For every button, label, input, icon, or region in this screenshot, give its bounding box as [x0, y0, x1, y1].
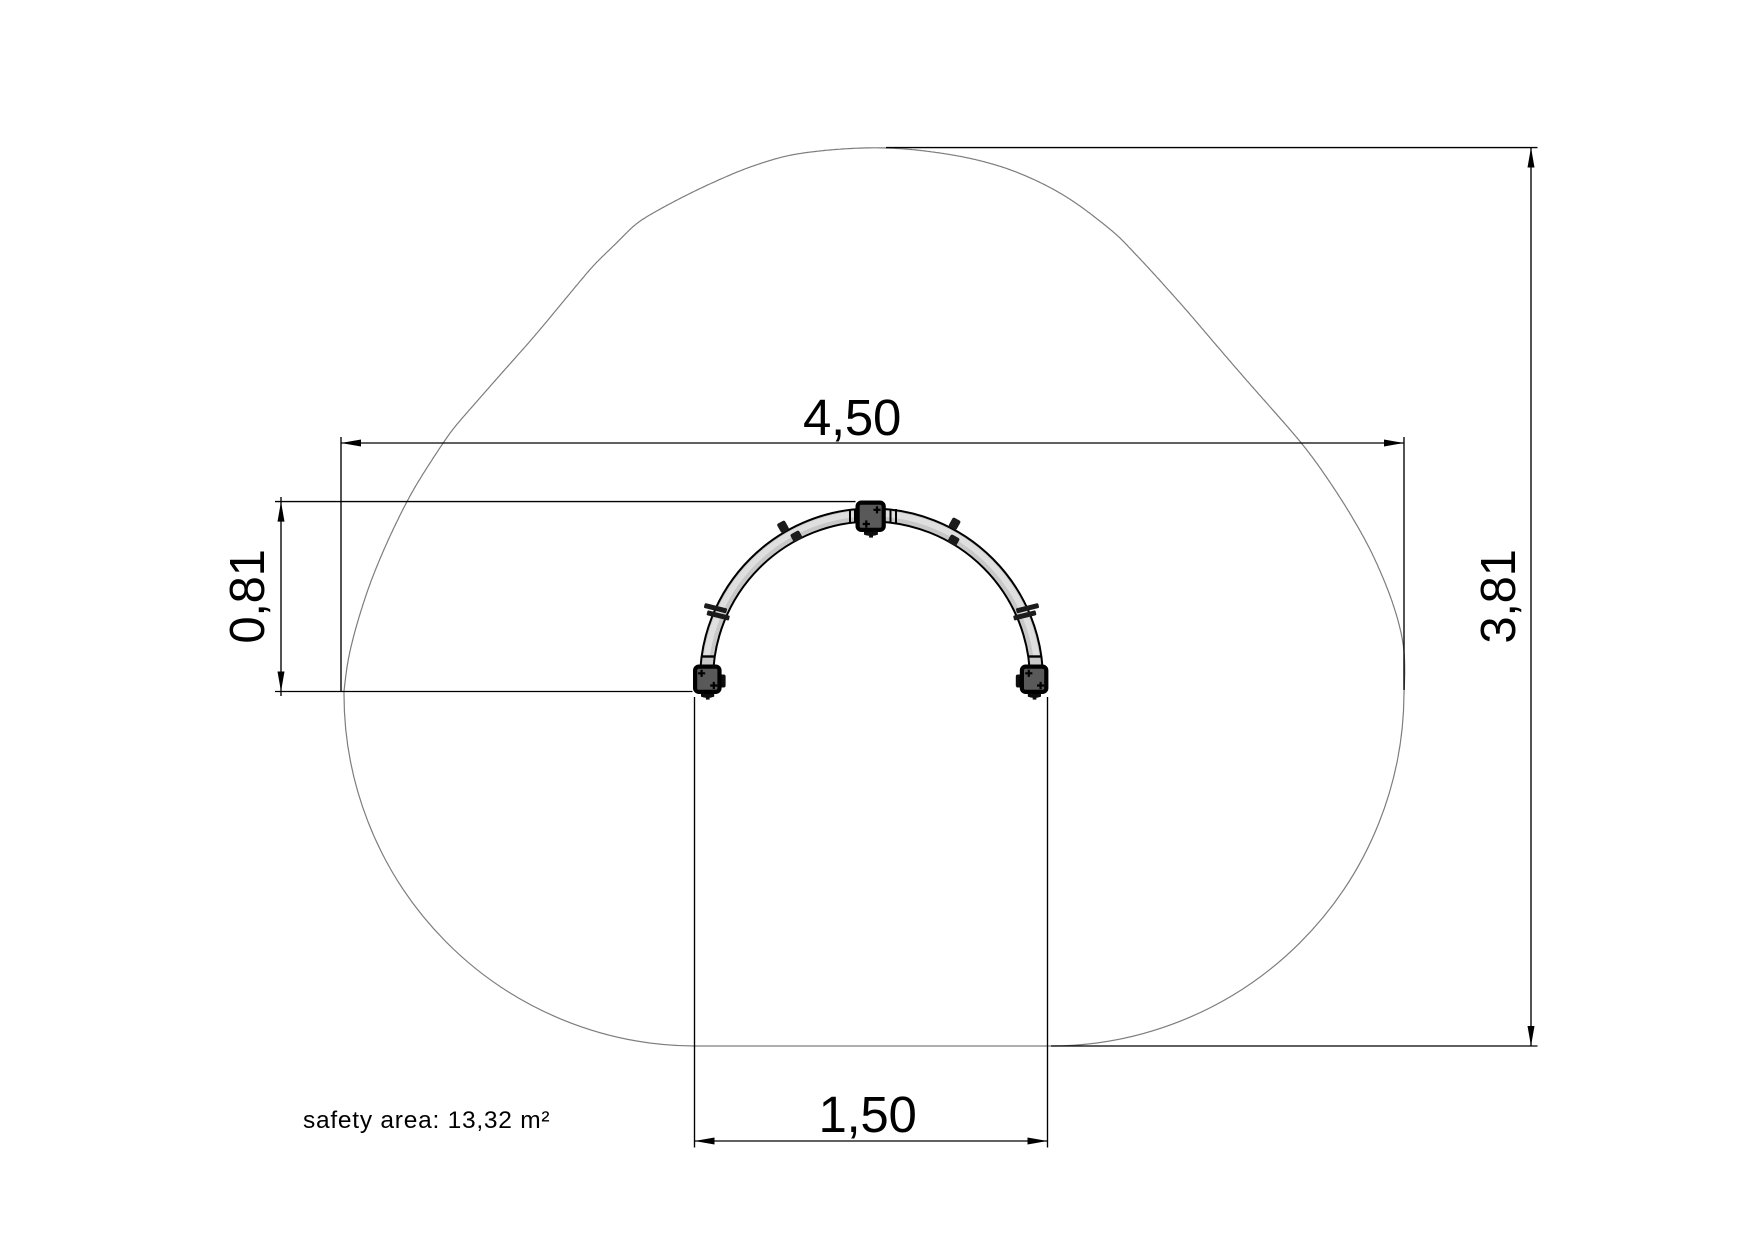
svg-text:0,81: 0,81: [221, 549, 275, 643]
svg-text:1,50: 1,50: [818, 1086, 916, 1143]
svg-text:3,81: 3,81: [1472, 549, 1526, 643]
svg-text:4,50: 4,50: [803, 389, 901, 446]
svg-text:safety area: 13,32 m²: safety area: 13,32 m²: [303, 1107, 550, 1134]
